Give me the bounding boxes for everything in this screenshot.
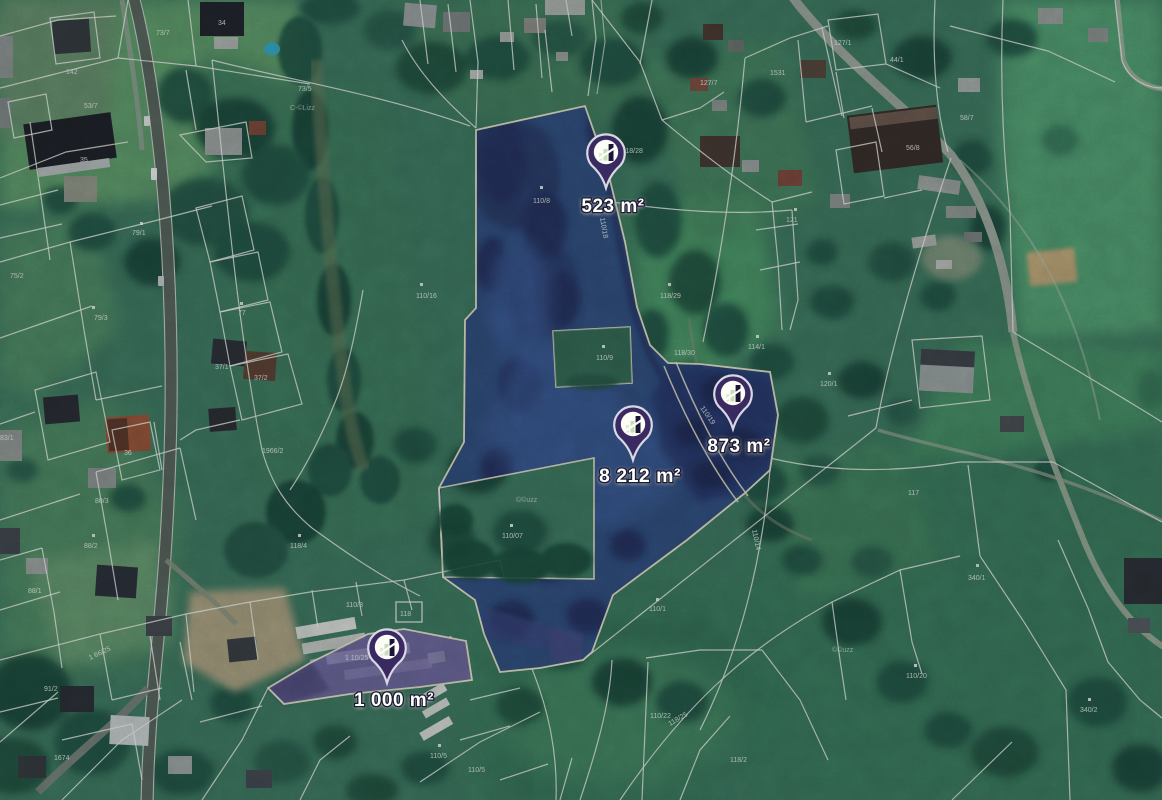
svg-text:523 m²: 523 m² xyxy=(581,196,644,217)
svg-text:8 212 m²: 8 212 m² xyxy=(599,465,681,487)
svg-text:873 m²: 873 m² xyxy=(707,436,770,457)
svg-text:1 000 m²: 1 000 m² xyxy=(354,690,434,711)
